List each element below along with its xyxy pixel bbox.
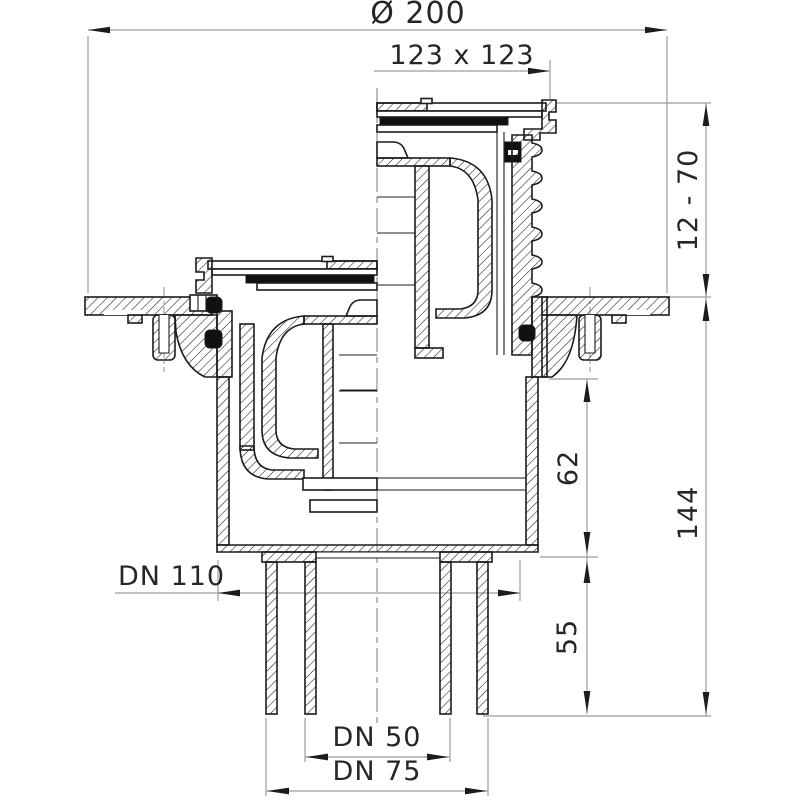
arrow-dn110-right: [498, 590, 520, 597]
body-bottom-plate: [217, 545, 538, 552]
spigot-dn75-wall-right: [477, 562, 488, 714]
grate-lowered-rib: [322, 257, 333, 262]
funnel-rim-lowered: [304, 316, 377, 324]
shelf-lowered: [303, 478, 377, 490]
arrow-flange-left: [88, 27, 110, 33]
shelf-step-lowered: [310, 500, 377, 512]
flange-rib-left: [128, 315, 142, 323]
arrow-62-bottom: [584, 532, 591, 554]
grate-raised-cut: [377, 103, 427, 111]
arrow-adjust-bottom: [703, 274, 710, 296]
arrow-adjust-top: [703, 104, 710, 126]
arrow-55-top: [584, 561, 591, 583]
arrow-144-top: [703, 299, 710, 321]
gasket-raised: [380, 117, 508, 125]
outlet-throat: [317, 552, 439, 558]
trap-bell-raised: [436, 158, 492, 318]
funnel-foot-raised: [415, 348, 443, 358]
frame-raised-lower: [377, 125, 497, 132]
funnel-interior-edges-raised: [377, 197, 415, 285]
technical-drawing-canvas: Ø 200 123 x 123 12 - 70 62 144 55 DN 110…: [0, 0, 800, 800]
label-dn50: DN 50: [333, 722, 422, 753]
gasket-lowered: [246, 275, 374, 283]
arrow-dn50-right: [427, 754, 449, 761]
grate-lowered-cut: [327, 261, 377, 269]
funnel-interior-edges-lowered: [339, 355, 377, 443]
arrow-62-top: [584, 380, 591, 402]
o-ring-left-lower: [205, 330, 222, 348]
dimension-arrowheads: [88, 27, 709, 795]
label-62: 62: [553, 450, 584, 486]
label-total-height: 144: [673, 486, 704, 541]
funnel-inner-wall-lowered: [323, 324, 333, 490]
label-dn110: DN 110: [118, 561, 225, 592]
funnel-rim-raised: [377, 158, 450, 166]
body-wall-left: [217, 377, 229, 545]
body-wall-right: [526, 377, 538, 545]
spigot-dn75-wall-left: [266, 562, 277, 714]
label-height-adjustment: 12 - 70: [673, 149, 704, 252]
arrow-dn50-left: [306, 754, 328, 761]
frame-lowered-lower: [257, 283, 377, 290]
clamp-channel-right-slot: [585, 315, 595, 353]
grate-raised-rib: [421, 99, 432, 104]
sleeve-inner-lines-raised: [497, 132, 504, 355]
clamp-channel-left-slot: [159, 315, 169, 353]
arrow-dn75-right: [465, 788, 487, 795]
funnel-knob-lowered: [346, 300, 377, 316]
funnel-wall-raised: [415, 166, 429, 348]
arrow-dn75-left: [267, 788, 289, 795]
label-spigot-length: 55: [552, 619, 583, 655]
top-section-raised: [377, 99, 556, 359]
arrow-144-bottom: [703, 692, 710, 714]
label-grate-size: 123 x 123: [389, 40, 534, 71]
arrow-flange-right: [645, 27, 667, 33]
label-flange-diameter: Ø 200: [370, 0, 465, 31]
floor-drain-section-drawing: Ø 200 123 x 123 12 - 70 62 144 55 DN 110…: [0, 0, 800, 800]
frame-lowered-upper: [212, 269, 377, 275]
funnel-knob-raised: [377, 142, 408, 158]
o-ring-right: [519, 325, 535, 341]
outlet-shoulder-left: [262, 552, 316, 562]
frame-raised-upper: [377, 111, 542, 117]
o-ring-left-upper: [206, 297, 222, 313]
label-dn75: DN 75: [333, 756, 422, 787]
funnel-wall-lowered: [240, 324, 254, 450]
flange-rib-right: [612, 315, 626, 323]
spigot-dn50-wall-right: [440, 562, 451, 714]
outlet-shoulder-right: [440, 552, 492, 562]
frame-lowered-hook: [196, 258, 212, 293]
arrow-55-bottom: [584, 691, 591, 713]
trap-bell-lowered: [262, 316, 318, 458]
spigot-dn50-wall-left: [305, 562, 316, 714]
